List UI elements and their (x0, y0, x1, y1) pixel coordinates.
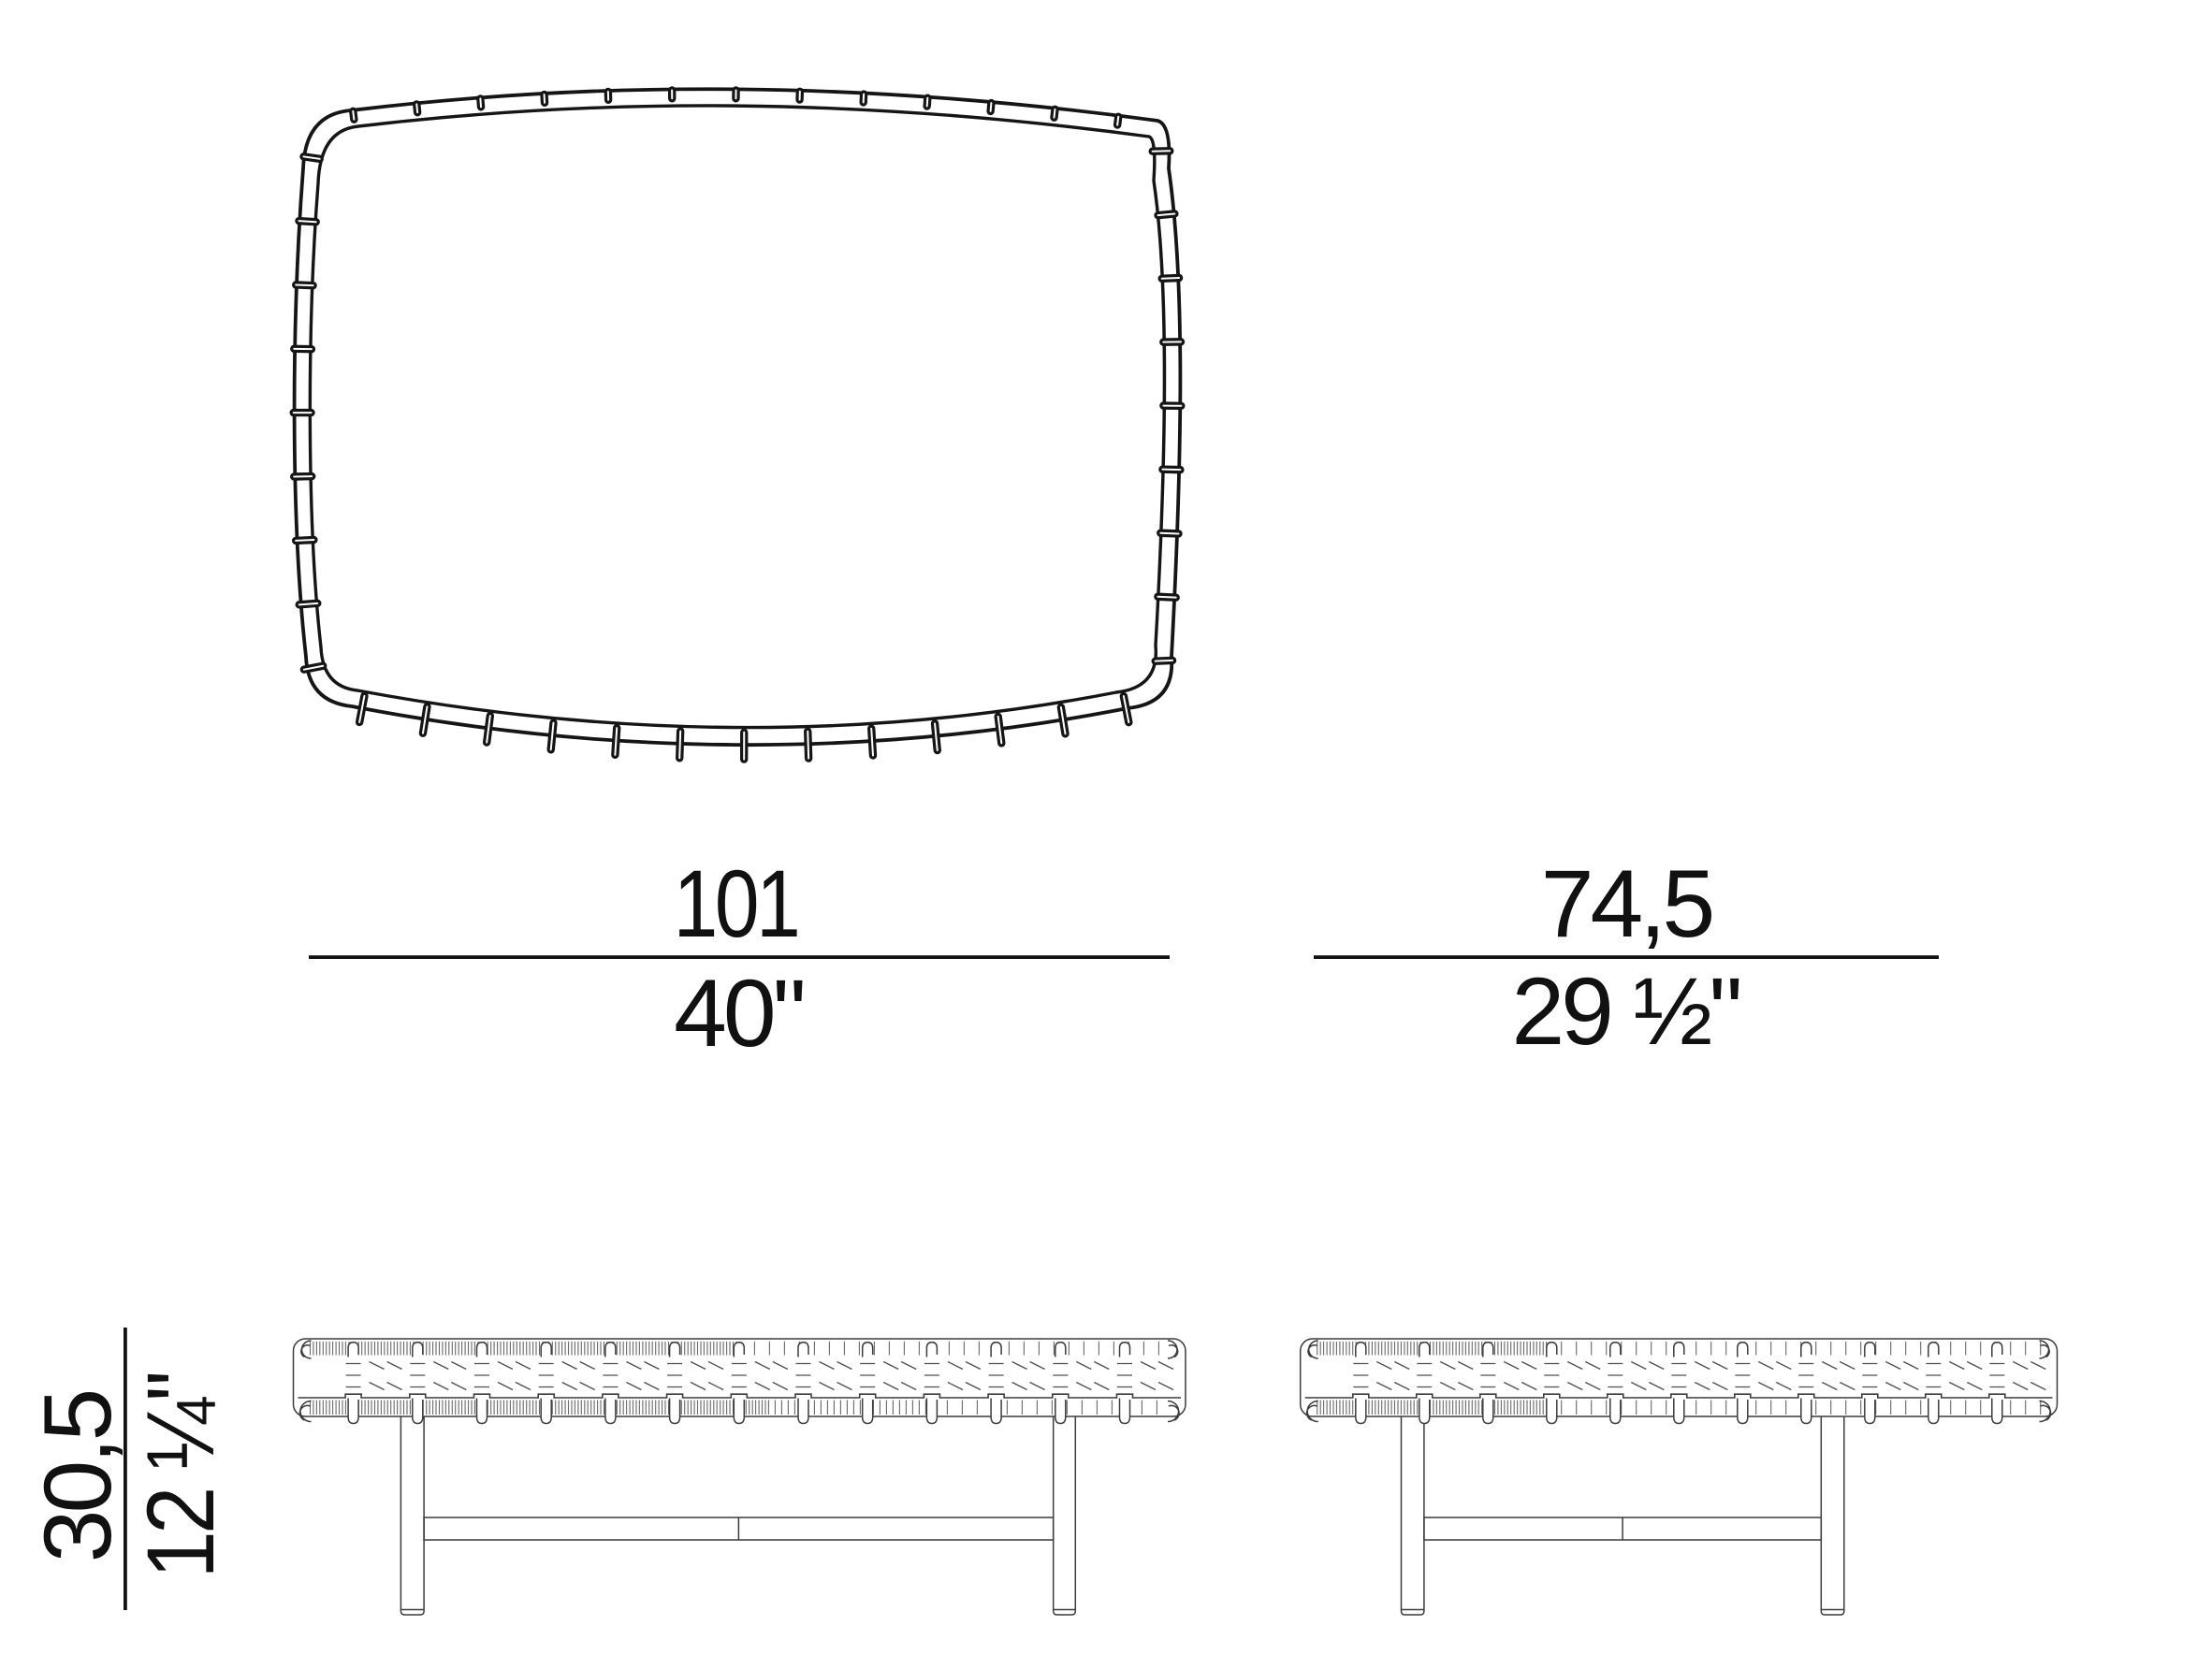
svg-text:29 ½": 29 ½" (1511, 958, 1739, 1065)
svg-text:101: 101 (674, 850, 798, 957)
svg-text:30,5: 30,5 (24, 1391, 131, 1562)
svg-text:12 ¼": 12 ¼" (126, 1373, 234, 1578)
svg-text:40": 40" (674, 960, 803, 1067)
svg-text:74,5: 74,5 (1541, 850, 1712, 957)
